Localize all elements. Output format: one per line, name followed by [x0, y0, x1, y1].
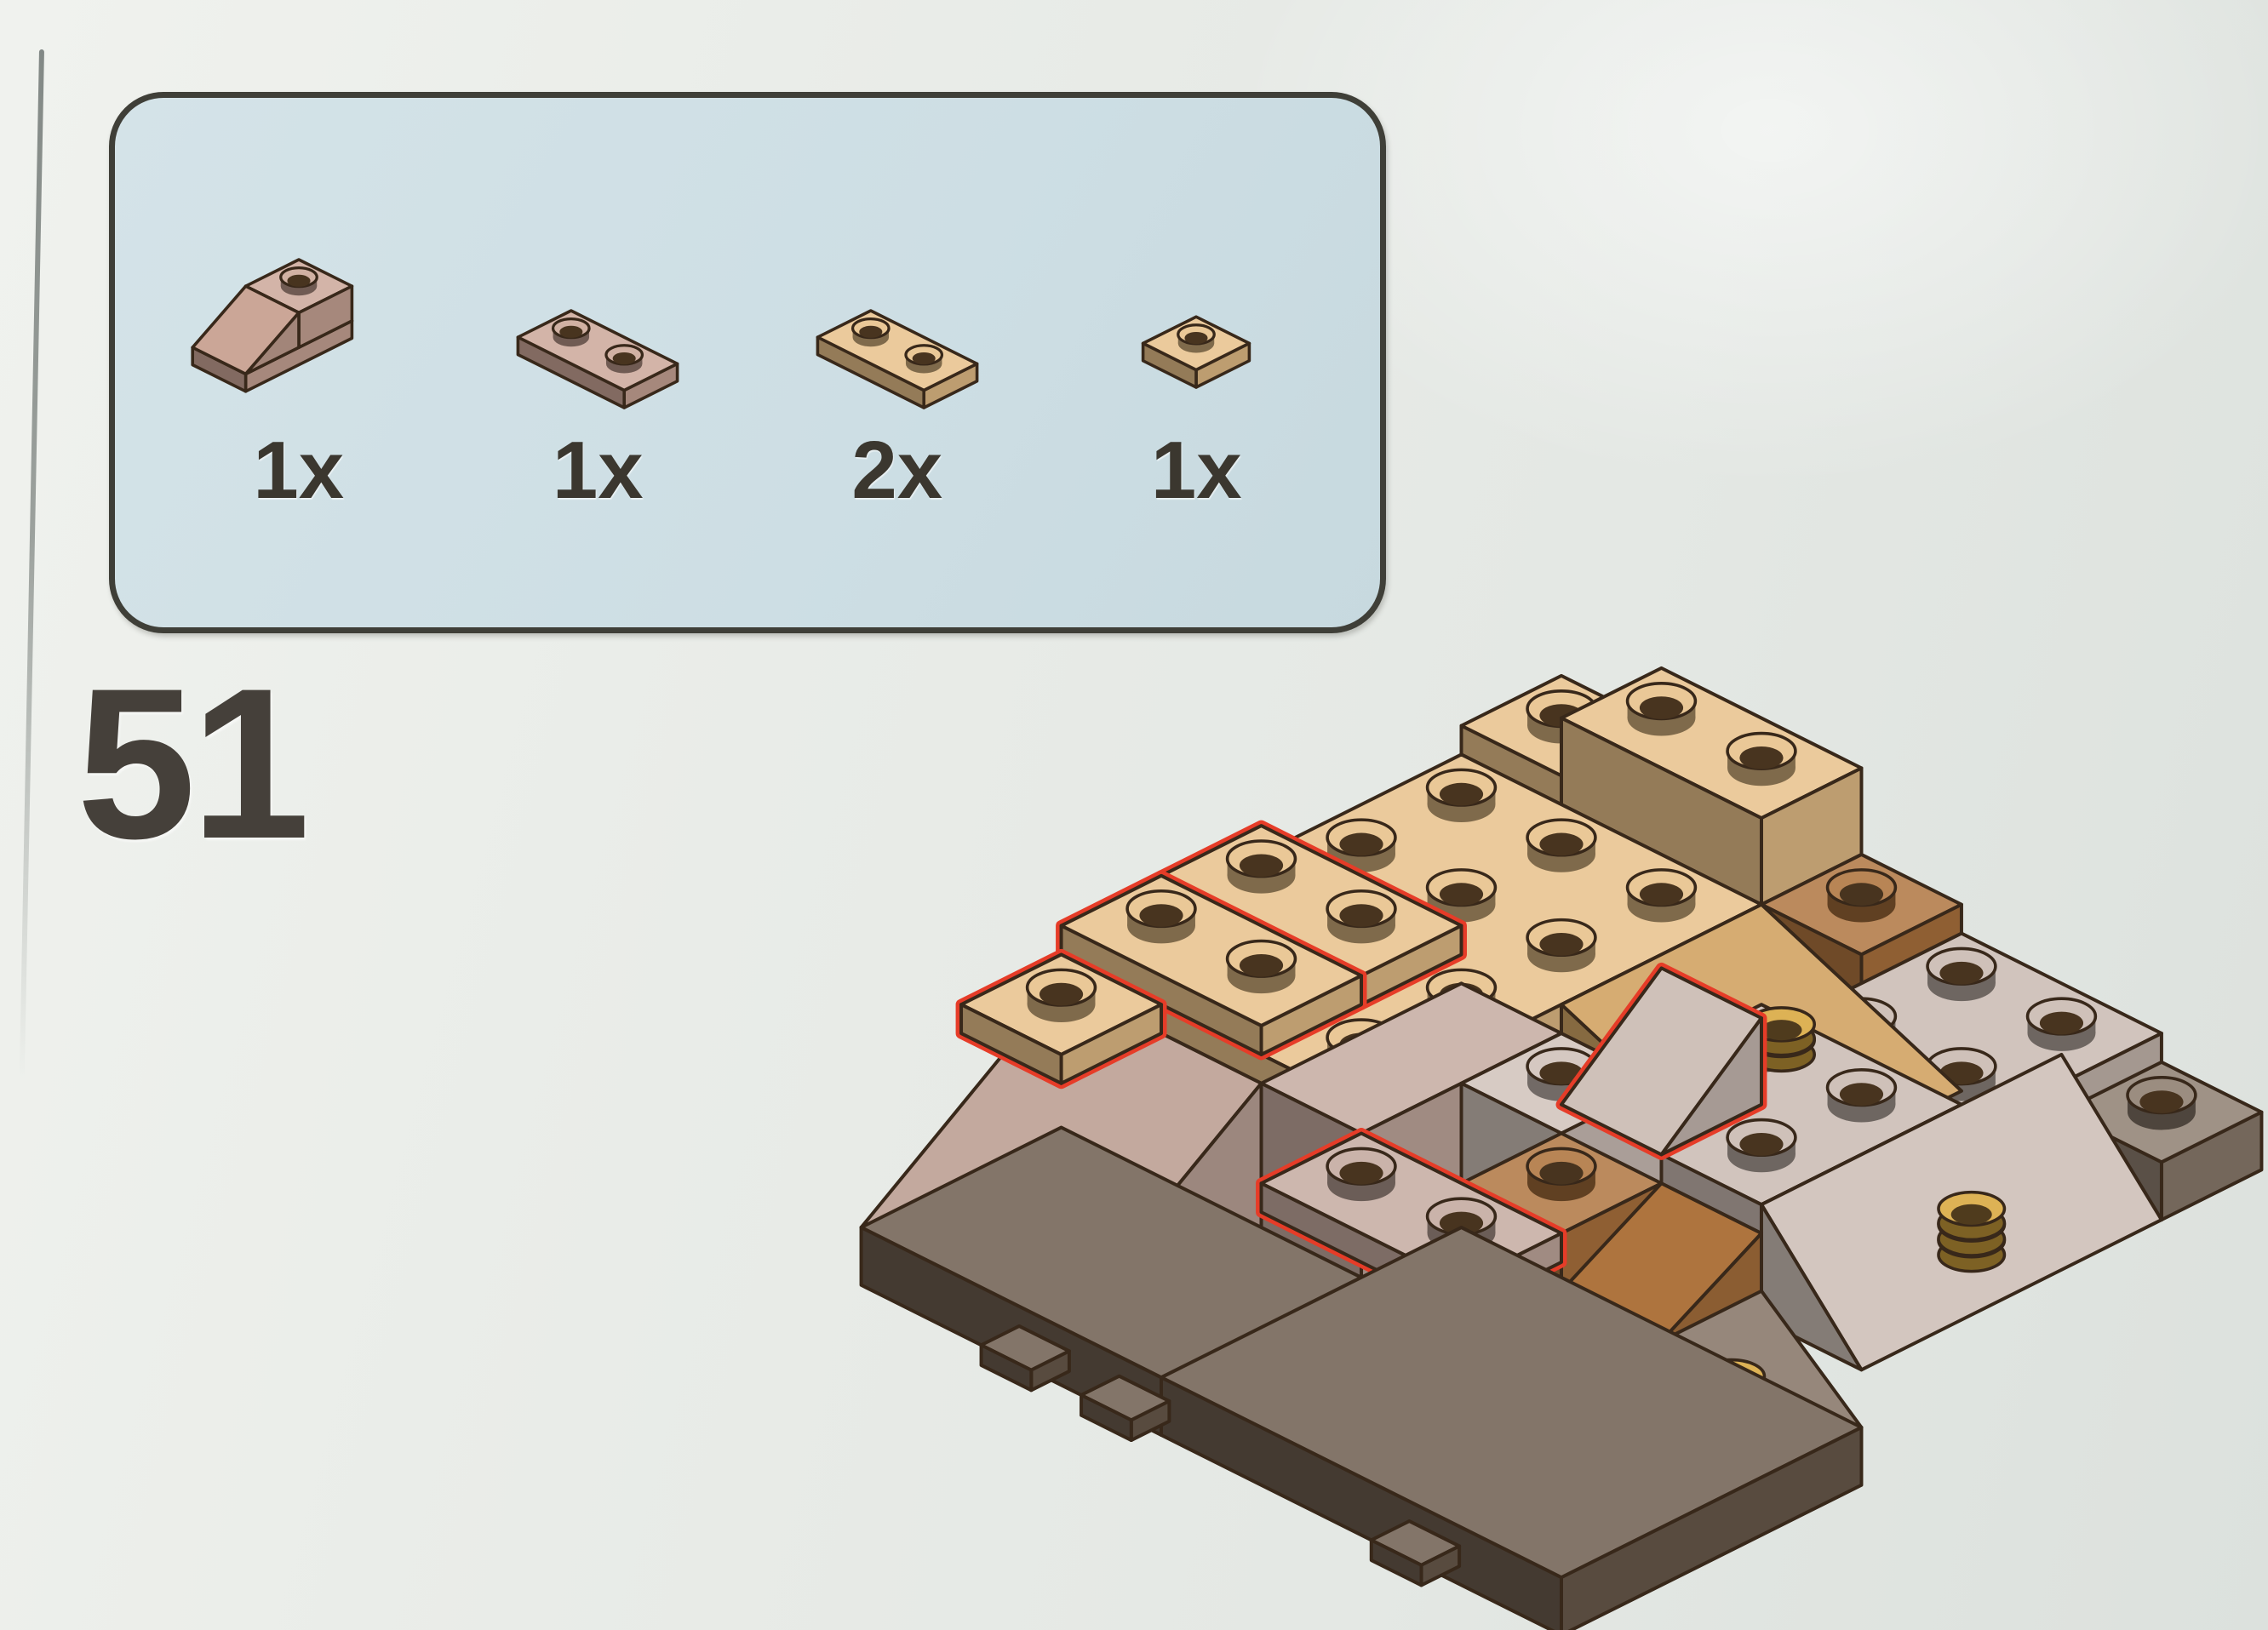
- part-cell-plate-1x1-tan: 1x: [1047, 214, 1345, 512]
- part-cell-slope-1x2: 1x: [150, 214, 448, 512]
- box-piece: [817, 311, 976, 408]
- box-piece: [518, 311, 678, 408]
- box-piece: [1143, 317, 1250, 387]
- plate-1x1-tan-icon: [1063, 214, 1329, 418]
- coin-stack: [1939, 1192, 2004, 1272]
- instruction-page: 1x 1x 2x 1x 51: [0, 0, 2268, 1630]
- part-cell-plate-1x2-dark-tan: 1x: [449, 214, 747, 512]
- part-count-label: 1x: [553, 430, 644, 512]
- parts-callout-panel: 1x 1x 2x 1x: [109, 92, 1386, 633]
- part-count-label: 2x: [851, 430, 942, 512]
- plate-1x2-tan-icon: [765, 214, 1030, 418]
- part-count-label: 1x: [253, 430, 344, 512]
- slope-brick-1x2-icon: [166, 214, 432, 418]
- part-cell-plate-1x2-tan: 2x: [748, 214, 1046, 512]
- page-left-edge-line: [19, 49, 44, 1122]
- plate-1x2-dark-tan-icon: [465, 214, 730, 418]
- step-number: 51: [77, 657, 305, 872]
- model-illustration: [855, 647, 2268, 1630]
- part-count-label: 1x: [1151, 430, 1242, 512]
